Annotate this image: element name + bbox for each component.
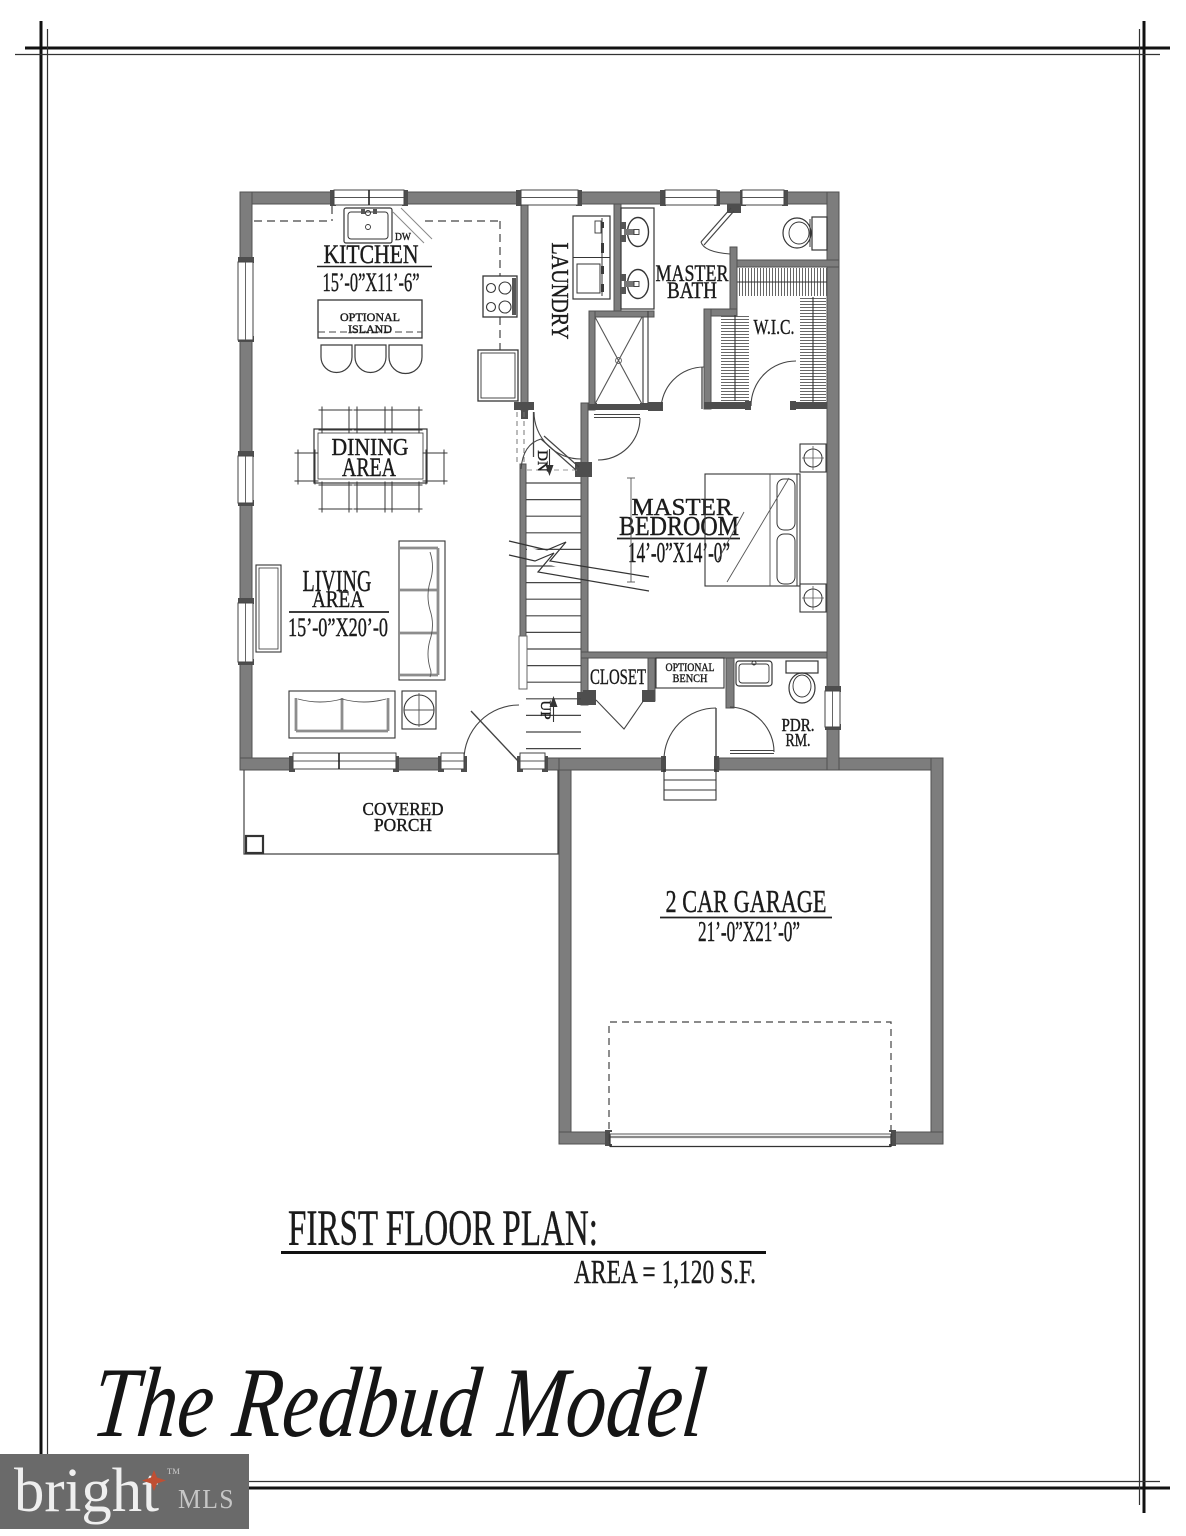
svg-text:2 CAR GARAGE: 2 CAR GARAGE [666,883,827,919]
svg-text:KITCHEN: KITCHEN [324,240,419,269]
svg-text:15’-0”X20’-0: 15’-0”X20’-0 [288,613,388,642]
svg-text:14’-0”X14’-0”: 14’-0”X14’-0” [628,538,730,569]
svg-text:BATH: BATH [667,278,717,303]
svg-text:bright: bright [14,1457,159,1525]
svg-text:W.I.C.: W.I.C. [754,315,795,339]
svg-text:21’-0”X21’-0”: 21’-0”X21’-0” [698,917,800,948]
svg-text:LAUNDRY: LAUNDRY [546,243,572,340]
svg-text:BENCH: BENCH [673,671,708,685]
svg-text:TM: TM [167,1466,180,1476]
svg-text:BEDROOM: BEDROOM [619,511,739,541]
svg-text:The Redbud Model: The Redbud Model [88,1347,712,1458]
svg-text:MLS: MLS [178,1484,235,1514]
svg-text:FIRST FLOOR PLAN:: FIRST FLOOR PLAN: [288,1201,598,1257]
svg-text:15’-0”X11’-6”: 15’-0”X11’-6” [323,268,420,297]
svg-text:PORCH: PORCH [374,815,432,835]
svg-text:AREA: AREA [312,587,364,612]
svg-text:RM.: RM. [786,730,811,750]
svg-text:CLOSET: CLOSET [590,664,646,689]
svg-text:AREA: AREA [342,453,396,482]
svg-text:ISLAND: ISLAND [348,322,392,336]
svg-text:AREA = 1,120 S.F.: AREA = 1,120 S.F. [574,1254,756,1291]
svg-text:UP: UP [537,700,553,719]
